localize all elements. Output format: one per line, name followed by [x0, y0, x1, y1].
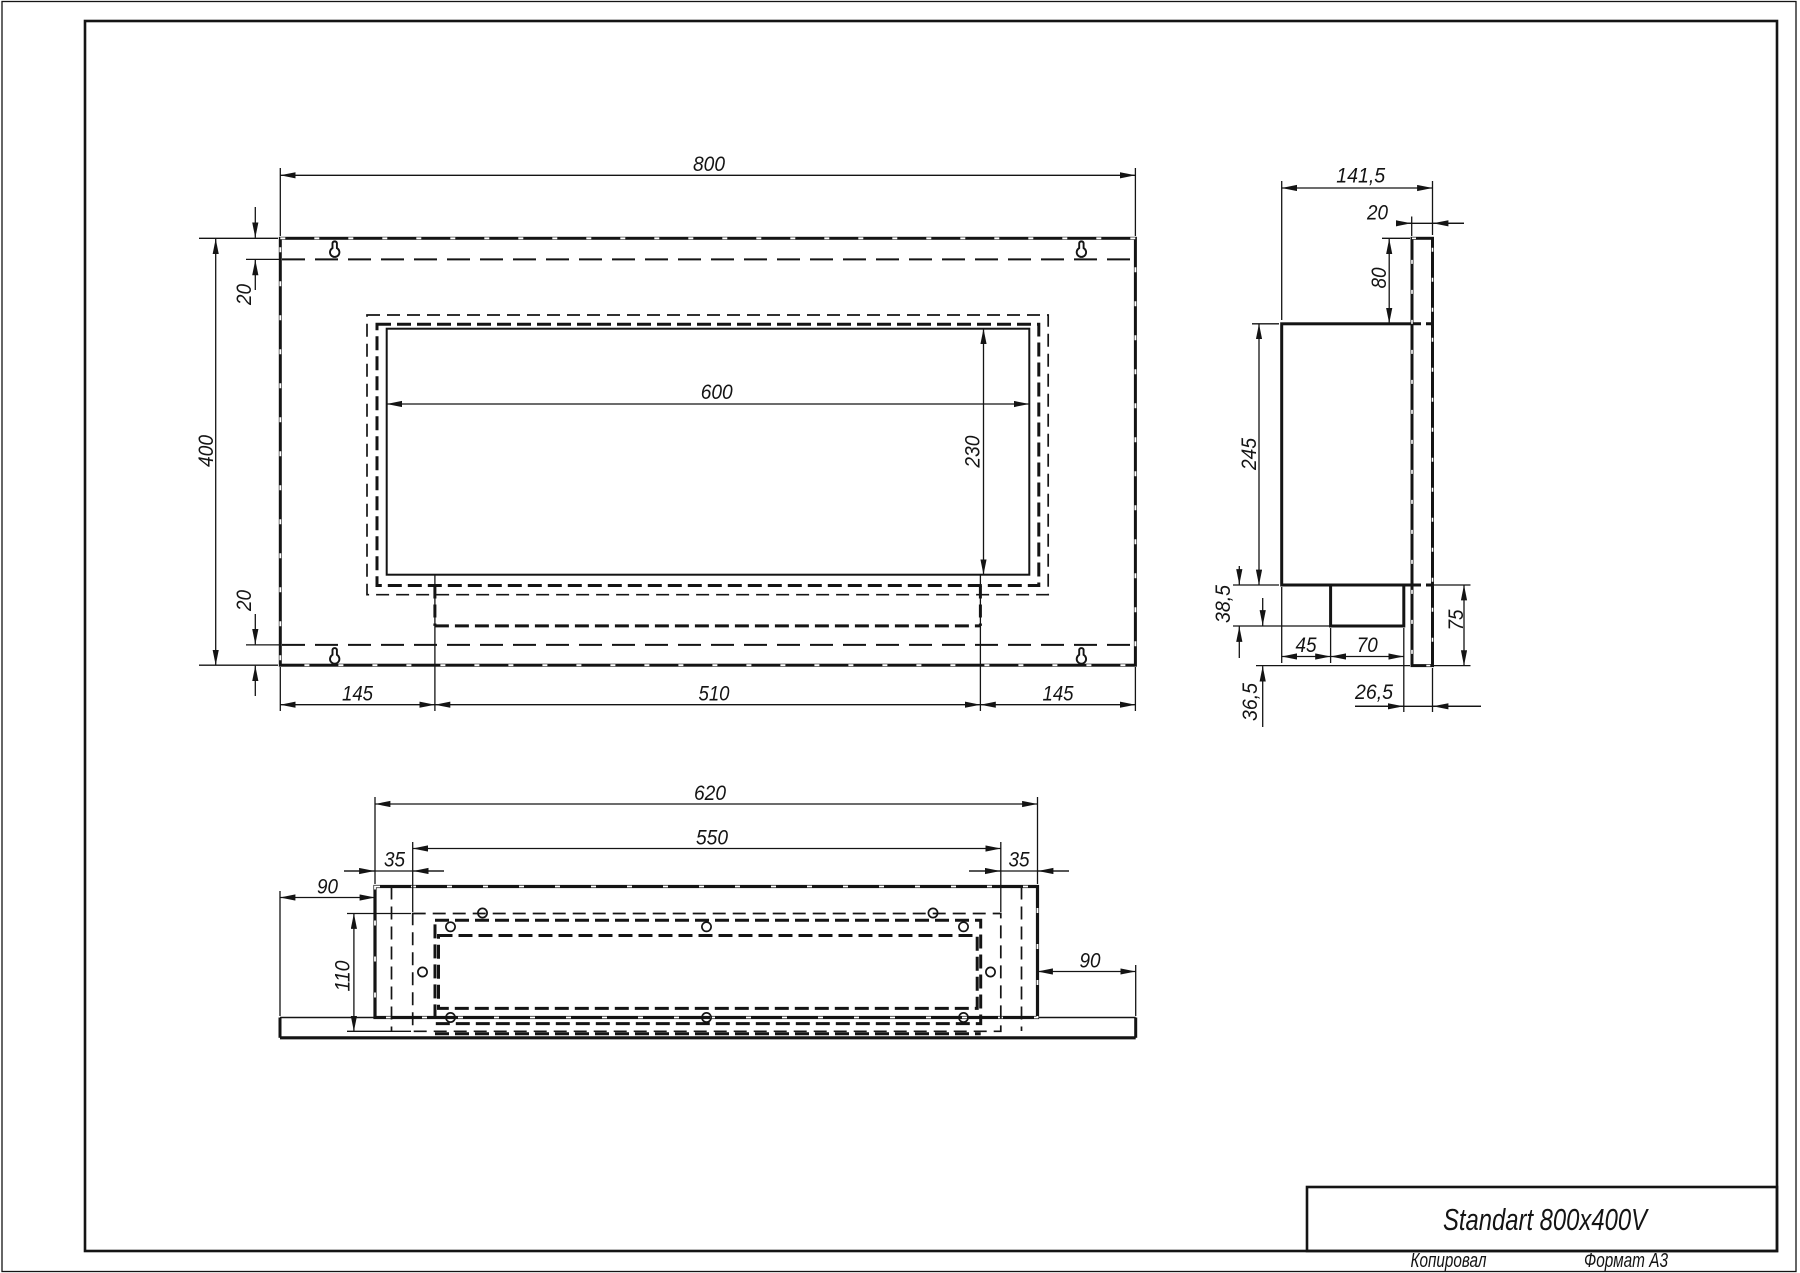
- svg-text:26,5: 26,5: [1354, 681, 1393, 704]
- svg-text:20: 20: [1366, 202, 1388, 225]
- svg-text:35: 35: [1009, 849, 1030, 872]
- svg-text:90: 90: [317, 876, 338, 899]
- svg-text:620: 620: [694, 782, 726, 805]
- svg-text:80: 80: [1368, 267, 1391, 288]
- svg-text:800: 800: [693, 153, 725, 176]
- svg-text:75: 75: [1445, 609, 1468, 630]
- svg-text:110: 110: [331, 960, 354, 991]
- svg-text:Копировал: Копировал: [1411, 1250, 1487, 1272]
- svg-text:36,5: 36,5: [1239, 683, 1262, 721]
- svg-text:600: 600: [701, 381, 733, 404]
- svg-text:550: 550: [696, 827, 728, 850]
- svg-text:45: 45: [1296, 634, 1317, 657]
- svg-text:145: 145: [342, 683, 373, 706]
- svg-text:20: 20: [233, 590, 256, 612]
- svg-text:35: 35: [384, 849, 405, 872]
- svg-text:141,5: 141,5: [1336, 165, 1385, 188]
- svg-text:245: 245: [1238, 438, 1261, 471]
- svg-text:20: 20: [233, 284, 256, 306]
- svg-text:70: 70: [1357, 634, 1378, 657]
- svg-text:230: 230: [962, 435, 985, 468]
- svg-text:510: 510: [699, 683, 730, 706]
- svg-text:38,5: 38,5: [1212, 585, 1235, 623]
- svg-text:400: 400: [195, 435, 218, 467]
- svg-text:Standart 800x400V: Standart 800x400V: [1443, 1202, 1650, 1237]
- svg-text:Формат А3: Формат А3: [1584, 1250, 1668, 1272]
- svg-text:90: 90: [1080, 950, 1101, 973]
- svg-text:145: 145: [1043, 683, 1074, 706]
